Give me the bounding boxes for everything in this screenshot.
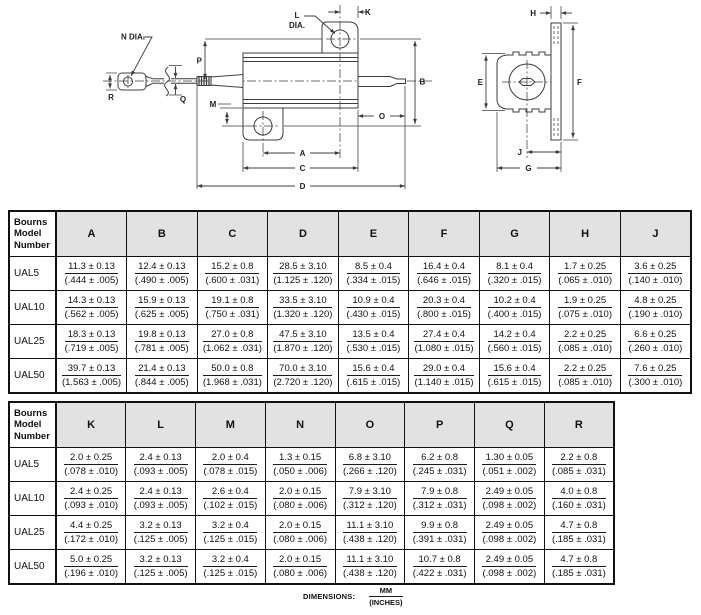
inch-value: (.085 ± .010)	[558, 376, 612, 388]
dim-cell: 28.5 ± 3.10(1.125 ± .120)	[268, 257, 339, 291]
inch-value: (.844 ± .005)	[135, 376, 189, 388]
mm-value: 2.49 ± 0.05	[482, 554, 536, 567]
model-cell: UAL10	[9, 482, 56, 516]
footer-dimensions-note: DIMENSIONS: MM (INCHES)	[303, 586, 403, 607]
inch-value: (.430 ± .015)	[347, 308, 401, 320]
mm-value: 10.7 ± 0.8	[413, 554, 467, 567]
mm-inch-fraction: 50.0 ± 0.8(1.968 ± .031)	[203, 363, 262, 388]
model-cell: UAL5	[9, 257, 56, 291]
mm-inch-fraction: 7.9 ± 0.8(.312 ± .031)	[413, 486, 467, 511]
mm-inch-fraction: 29.0 ± 0.4(1.140 ± .015)	[414, 363, 473, 388]
mm-value: 15.6 ± 0.4	[347, 363, 401, 376]
inch-value: (.085 ± .010)	[558, 342, 612, 354]
inch-value: (1.140 ± .015)	[414, 376, 473, 388]
inch-value: (.140 ± .010)	[628, 274, 682, 286]
inch-value: (.098 ± .002)	[482, 533, 536, 545]
table-row: UAL1014.3 ± 0.13(.562 ± .005)15.9 ± 0.13…	[9, 291, 691, 325]
inch-value: (.312 ± .120)	[343, 499, 397, 511]
inch-value: (1.080 ± .015)	[414, 342, 473, 354]
mm-inch-fraction: 1.9 ± 0.25(.075 ± .010)	[558, 295, 612, 320]
inch-value: (.051 ± .002)	[482, 465, 536, 477]
table-row: UAL2518.3 ± 0.13(.719 ± .005)19.8 ± 0.13…	[9, 325, 691, 359]
mm-inch-fraction: 2.0 ± 0.15(.080 ± .006)	[273, 520, 327, 545]
mm-inch-fraction: 8.1 ± 0.4(.320 ± .015)	[488, 261, 542, 286]
mm-value: 20.3 ± 0.4	[417, 295, 471, 308]
mm-inch-fraction: 27.4 ± 0.4(1.080 ± .015)	[414, 329, 473, 354]
dim-cell: 2.49 ± 0.05(.098 ± .002)	[475, 550, 545, 585]
inch-value: (.172 ± .010)	[64, 533, 118, 545]
units-inches: (INCHES)	[369, 597, 402, 607]
dim-label-h: H	[530, 9, 536, 18]
dim-cell: 19.1 ± 0.8(.750 ± .031)	[197, 291, 268, 325]
mm-inch-fraction: 6.6 ± 0.25(.260 ± .010)	[628, 329, 682, 354]
inch-value: (.334 ± .015)	[347, 274, 401, 286]
mm-value: 70.0 ± 3.10	[273, 363, 332, 376]
inch-value: (1.320 ± .120)	[273, 308, 332, 320]
mm-value: 2.4 ± 0.13	[134, 452, 188, 465]
inch-value: (.422 ± .031)	[413, 567, 467, 579]
table-row: UAL102.4 ± 0.25(.093 ± .010)2.4 ± 0.13(.…	[9, 482, 614, 516]
mm-inch-fraction: 39.7 ± 0.13(1.563 ± .005)	[62, 363, 121, 388]
table-row: UAL5039.7 ± 0.13(1.563 ± .005)21.4 ± 0.1…	[9, 359, 691, 394]
mm-value: 2.0 ± 0.25	[64, 452, 118, 465]
inch-value: (1.125 ± .120)	[273, 274, 332, 286]
dim-cell: 16.4 ± 0.4(.646 ± .015)	[409, 257, 480, 291]
inch-value: (.438 ± .120)	[343, 567, 397, 579]
dim-cell: 2.0 ± 0.15(.080 ± .006)	[265, 516, 335, 550]
mm-inch-fraction: 1.30 ± 0.05(.051 ± .002)	[482, 452, 536, 477]
inch-value: (.750 ± .031)	[205, 308, 259, 320]
table-row: UAL52.0 ± 0.25(.078 ± .010)2.4 ± 0.13(.0…	[9, 448, 614, 482]
dim-cell: 3.2 ± 0.13(.125 ± .005)	[126, 516, 196, 550]
dim-cell: 2.4 ± 0.13(.093 ± .005)	[126, 448, 196, 482]
mm-value: 29.0 ± 0.4	[414, 363, 473, 376]
mm-value: 15.6 ± 0.4	[488, 363, 542, 376]
dimension-table-2-container: Bourns Model NumberKLMNOPQRUAL52.0 ± 0.2…	[8, 401, 615, 585]
dim-cell: 3.6 ± 0.25(.140 ± .010)	[620, 257, 691, 291]
inch-value: (.085 ± .031)	[552, 465, 606, 477]
mm-value: 19.8 ± 0.13	[135, 329, 189, 342]
dim-cell: 2.0 ± 0.15(.080 ± .006)	[265, 550, 335, 585]
table-row: UAL505.0 ± 0.25(.196 ± .010)3.2 ± 0.13(.…	[9, 550, 614, 585]
inch-value: (.719 ± .005)	[65, 342, 119, 354]
model-number-header: Bourns Model Number	[9, 211, 56, 257]
model-cell: UAL50	[9, 359, 56, 394]
inch-value: (.300 ± .010)	[628, 376, 682, 388]
mm-value: 19.1 ± 0.8	[205, 295, 259, 308]
column-header: N	[265, 402, 335, 448]
dim-cell: 14.2 ± 0.4(.560 ± .015)	[479, 325, 550, 359]
dimensions-label: DIMENSIONS:	[303, 592, 355, 601]
mm-value: 15.9 ± 0.13	[135, 295, 189, 308]
dimension-lines-side	[486, 13, 573, 168]
dim-cell: 7.6 ± 0.25(.300 ± .010)	[620, 359, 691, 394]
dim-cell: 11.3 ± 0.13(.444 ± .005)	[56, 257, 127, 291]
mm-value: 6.6 ± 0.25	[628, 329, 682, 342]
mm-inch-fraction: 20.3 ± 0.4(.800 ± .015)	[417, 295, 471, 320]
inch-value: (.098 ± .002)	[482, 567, 536, 579]
dim-label-b: B	[420, 78, 426, 87]
mm-value: 2.0 ± 0.15	[273, 554, 327, 567]
mm-value: 1.9 ± 0.25	[558, 295, 612, 308]
inch-value: (.102 ± .015)	[203, 499, 257, 511]
dim-cell: 12.4 ± 0.13(.490 ± .005)	[127, 257, 198, 291]
units-mm: MM	[369, 586, 402, 597]
mm-value: 12.4 ± 0.13	[135, 261, 189, 274]
column-header: Q	[475, 402, 545, 448]
mm-inch-fraction: 2.0 ± 0.4(.078 ± .015)	[203, 452, 257, 477]
inch-value: (.560 ± .015)	[488, 342, 542, 354]
dim-cell: 13.5 ± 0.4(.530 ± .015)	[338, 325, 409, 359]
dim-cell: 6.8 ± 3.10(.266 ± .120)	[335, 448, 405, 482]
dim-label-o: O	[379, 112, 385, 121]
front-view: N DIA. L DIA. K P Q R M B O A C D	[103, 5, 432, 191]
mm-inch-fraction: 3.2 ± 0.4(.125 ± .015)	[203, 554, 257, 579]
mm-value: 33.5 ± 3.10	[273, 295, 332, 308]
inch-value: (.438 ± .120)	[343, 533, 397, 545]
inch-value: (.615 ± .015)	[347, 376, 401, 388]
mm-inch-fraction: 3.2 ± 0.13(.125 ± .005)	[134, 520, 188, 545]
mm-value: 2.2 ± 0.25	[558, 329, 612, 342]
dim-cell: 9.9 ± 0.8(.391 ± .031)	[405, 516, 475, 550]
dim-label-p: P	[197, 57, 203, 66]
mm-value: 1.30 ± 0.05	[482, 452, 536, 465]
n-dia-leader	[131, 37, 152, 76]
mm-inch-fraction: 4.7 ± 0.8(.185 ± .031)	[552, 554, 606, 579]
dim-cell: 2.6 ± 0.4(.102 ± .015)	[196, 482, 266, 516]
dim-cell: 11.1 ± 3.10(.438 ± .120)	[335, 550, 405, 585]
header-row: Bourns Model NumberABCDEFGHJ	[9, 211, 691, 257]
mm-value: 4.8 ± 0.25	[628, 295, 682, 308]
inch-value: (.125 ± .005)	[134, 533, 188, 545]
inch-value: (.400 ± .015)	[488, 308, 542, 320]
mm-value: 11.3 ± 0.13	[65, 261, 119, 274]
mm-value: 2.49 ± 0.05	[482, 486, 536, 499]
inch-value: (2.720 ± .120)	[273, 376, 332, 388]
column-header: K	[56, 402, 126, 448]
inch-value: (.075 ± .010)	[558, 308, 612, 320]
extension-lines-front	[106, 6, 421, 189]
inch-value: (.050 ± .006)	[273, 465, 327, 477]
mm-value: 1.7 ± 0.25	[558, 261, 612, 274]
dim-label-a: A	[300, 149, 306, 158]
mm-inch-fraction: 27.0 ± 0.8(1.062 ± .031)	[203, 329, 262, 354]
mm-inch-fraction: 4.7 ± 0.8(.185 ± .031)	[552, 520, 606, 545]
model-cell: UAL10	[9, 291, 56, 325]
dim-cell: 2.49 ± 0.05(.098 ± .002)	[475, 516, 545, 550]
mm-value: 4.7 ± 0.8	[552, 520, 606, 533]
inch-value: (.625 ± .005)	[135, 308, 189, 320]
inch-value: (.391 ± .031)	[413, 533, 467, 545]
column-header: D	[268, 211, 339, 257]
dim-cell: 4.7 ± 0.8(.185 ± .031)	[544, 550, 614, 585]
inch-value: (.190 ± .010)	[628, 308, 682, 320]
dim-cell: 1.30 ± 0.05(.051 ± .002)	[475, 448, 545, 482]
inch-value: (.260 ± .010)	[628, 342, 682, 354]
inch-value: (.078 ± .010)	[64, 465, 118, 477]
mm-inch-fraction: 2.0 ± 0.25(.078 ± .010)	[64, 452, 118, 477]
break-symbol	[165, 67, 170, 96]
mm-value: 2.49 ± 0.05	[482, 520, 536, 533]
dim-cell: 7.9 ± 3.10(.312 ± .120)	[335, 482, 405, 516]
dim-cell: 4.8 ± 0.25(.190 ± .010)	[620, 291, 691, 325]
mm-value: 14.2 ± 0.4	[488, 329, 542, 342]
mm-value: 28.5 ± 3.10	[273, 261, 332, 274]
dim-cell: 6.2 ± 0.8(.245 ± .031)	[405, 448, 475, 482]
inch-value: (.093 ± .005)	[134, 465, 188, 477]
mm-value: 7.9 ± 3.10	[343, 486, 397, 499]
dim-cell: 3.2 ± 0.13(.125 ± .005)	[126, 550, 196, 585]
inch-value: (.245 ± .031)	[413, 465, 467, 477]
dim-cell: 7.9 ± 0.8(.312 ± .031)	[405, 482, 475, 516]
mm-inch-fraction: 4.0 ± 0.8(.160 ± .031)	[552, 486, 606, 511]
dim-cell: 1.3 ± 0.15(.050 ± .006)	[265, 448, 335, 482]
column-header: M	[196, 402, 266, 448]
mm-value: 2.4 ± 0.25	[64, 486, 118, 499]
mm-value: 6.2 ± 0.8	[413, 452, 467, 465]
mm-value: 15.2 ± 0.8	[205, 261, 259, 274]
mm-value: 18.3 ± 0.13	[65, 329, 119, 342]
dim-cell: 1.7 ± 0.25(.065 ± .010)	[550, 257, 621, 291]
dim-cell: 27.0 ± 0.8(1.062 ± .031)	[197, 325, 268, 359]
mm-value: 16.4 ± 0.4	[417, 261, 471, 274]
mm-inch-fraction: 15.2 ± 0.8(.600 ± .031)	[205, 261, 259, 286]
mm-inch-fraction: 13.5 ± 0.4(.530 ± .015)	[347, 329, 401, 354]
mm-inch-fraction: 18.3 ± 0.13(.719 ± .005)	[65, 329, 119, 354]
mm-inch-fraction: 12.4 ± 0.13(.490 ± .005)	[135, 261, 189, 286]
model-cell: UAL25	[9, 516, 56, 550]
extension-lines-side	[482, 6, 578, 172]
mm-value: 10.2 ± 0.4	[488, 295, 542, 308]
mm-value: 3.2 ± 0.13	[134, 554, 188, 567]
mm-inch-fraction: 6.2 ± 0.8(.245 ± .031)	[413, 452, 467, 477]
mm-inch-fraction: 10.2 ± 0.4(.400 ± .015)	[488, 295, 542, 320]
mm-value: 27.4 ± 0.4	[414, 329, 473, 342]
dim-cell: 2.49 ± 0.05(.098 ± .002)	[475, 482, 545, 516]
inch-value: (.078 ± .015)	[203, 465, 257, 477]
dim-cell: 2.2 ± 0.25(.085 ± .010)	[550, 325, 621, 359]
mm-value: 2.6 ± 0.4	[203, 486, 257, 499]
mm-value: 7.6 ± 0.25	[628, 363, 682, 376]
mm-value: 5.0 ± 0.25	[64, 554, 118, 567]
datasheet-page: N DIA. L DIA. K P Q R M B O A C D	[0, 0, 701, 615]
mm-inch-fraction: 2.4 ± 0.25(.093 ± .010)	[64, 486, 118, 511]
dim-label-f: F	[577, 78, 582, 87]
mm-inch-fraction: 14.3 ± 0.13(.562 ± .005)	[65, 295, 119, 320]
dimension-table-1: Bourns Model NumberABCDEFGHJUAL511.3 ± 0…	[8, 210, 692, 394]
mm-value: 3.2 ± 0.4	[203, 554, 257, 567]
inch-value: (.080 ± .006)	[273, 567, 327, 579]
mm-value: 2.4 ± 0.13	[134, 486, 188, 499]
model-cell: UAL5	[9, 448, 56, 482]
mm-inch-fraction: 15.9 ± 0.13(.625 ± .005)	[135, 295, 189, 320]
inch-value: (.160 ± .031)	[552, 499, 606, 511]
column-header: A	[56, 211, 127, 257]
dim-cell: 29.0 ± 0.4(1.140 ± .015)	[409, 359, 480, 394]
mm-value: 39.7 ± 0.13	[62, 363, 121, 376]
side-view: H E F J G	[478, 6, 582, 173]
dim-cell: 70.0 ± 3.10(2.720 ± .120)	[268, 359, 339, 394]
dim-cell: 6.6 ± 0.25(.260 ± .010)	[620, 325, 691, 359]
mm-value: 2.0 ± 0.15	[273, 520, 327, 533]
mm-value: 2.2 ± 0.25	[558, 363, 612, 376]
dim-cell: 5.0 ± 0.25(.196 ± .010)	[56, 550, 126, 585]
column-header: O	[335, 402, 405, 448]
mm-value: 4.0 ± 0.8	[552, 486, 606, 499]
dim-cell: 2.2 ± 0.25(.085 ± .010)	[550, 359, 621, 394]
dim-cell: 21.4 ± 0.13(.844 ± .005)	[127, 359, 198, 394]
mm-inch-fraction: 10.9 ± 0.4(.430 ± .015)	[347, 295, 401, 320]
column-header: G	[479, 211, 550, 257]
inch-value: (.093 ± .010)	[64, 499, 118, 511]
mm-value: 14.3 ± 0.13	[65, 295, 119, 308]
dimension-table-1-container: Bourns Model NumberABCDEFGHJUAL511.3 ± 0…	[8, 210, 692, 394]
inch-value: (.266 ± .120)	[343, 465, 397, 477]
inch-value: (.312 ± .031)	[413, 499, 467, 511]
dim-cell: 2.4 ± 0.25(.093 ± .010)	[56, 482, 126, 516]
dim-cell: 10.9 ± 0.4(.430 ± .015)	[338, 291, 409, 325]
dim-label-r: R	[108, 93, 114, 102]
column-header: B	[127, 211, 198, 257]
mm-inch-fraction: 7.9 ± 3.10(.312 ± .120)	[343, 486, 397, 511]
mm-inch-fraction: 2.2 ± 0.25(.085 ± .010)	[558, 329, 612, 354]
mm-inch-fraction: 1.7 ± 0.25(.065 ± .010)	[558, 261, 612, 286]
mm-inch-fraction: 2.6 ± 0.4(.102 ± .015)	[203, 486, 257, 511]
inch-value: (.196 ± .010)	[64, 567, 118, 579]
mounting-flange	[551, 23, 561, 140]
dim-cell: 20.3 ± 0.4(.800 ± .015)	[409, 291, 480, 325]
mm-inch-fraction: 9.9 ± 0.8(.391 ± .031)	[413, 520, 467, 545]
mm-value: 13.5 ± 0.4	[347, 329, 401, 342]
mm-value: 50.0 ± 0.8	[203, 363, 262, 376]
inch-value: (.080 ± .006)	[273, 499, 327, 511]
dimension-table-2: Bourns Model NumberKLMNOPQRUAL52.0 ± 0.2…	[8, 401, 615, 585]
mm-inch-fraction: 28.5 ± 3.10(1.125 ± .120)	[273, 261, 332, 286]
inch-value: (1.563 ± .005)	[62, 376, 121, 388]
mm-inch-fraction: 3.2 ± 0.13(.125 ± .005)	[134, 554, 188, 579]
model-cell: UAL50	[9, 550, 56, 585]
inch-value: (.185 ± .031)	[552, 533, 606, 545]
dim-label-g: G	[525, 164, 531, 173]
mm-inch-fraction: 2.2 ± 0.8(.085 ± .031)	[552, 452, 606, 477]
dim-label-l: L	[295, 11, 300, 20]
mm-inch-fraction: 4.4 ± 0.25(.172 ± .010)	[64, 520, 118, 545]
dim-cell: 14.3 ± 0.13(.562 ± .005)	[56, 291, 127, 325]
dim-cell: 10.7 ± 0.8(.422 ± .031)	[405, 550, 475, 585]
mm-value: 27.0 ± 0.8	[203, 329, 262, 342]
inch-value: (1.968 ± .031)	[203, 376, 262, 388]
dim-cell: 15.6 ± 0.4(.615 ± .015)	[338, 359, 409, 394]
model-number-header: Bourns Model Number	[9, 402, 56, 448]
dim-cell: 4.4 ± 0.25(.172 ± .010)	[56, 516, 126, 550]
inch-value: (.065 ± .010)	[558, 274, 612, 286]
dim-cell: 11.1 ± 3.10(.438 ± .120)	[335, 516, 405, 550]
dim-cell: 33.5 ± 3.10(1.320 ± .120)	[268, 291, 339, 325]
dim-cell: 19.8 ± 0.13(.781 ± .005)	[127, 325, 198, 359]
column-header: E	[338, 211, 409, 257]
mm-inch-fraction: 15.6 ± 0.4(.615 ± .015)	[488, 363, 542, 388]
mm-inch-fraction: 2.2 ± 0.25(.085 ± .010)	[558, 363, 612, 388]
mm-inch-fraction: 2.0 ± 0.15(.080 ± .006)	[273, 486, 327, 511]
l-dia-leader	[304, 16, 335, 34]
dim-cell: 3.2 ± 0.4(.125 ± .015)	[196, 516, 266, 550]
dim-cell: 1.9 ± 0.25(.075 ± .010)	[550, 291, 621, 325]
mm-value: 8.1 ± 0.4	[488, 261, 542, 274]
inch-value: (1.870 ± .120)	[273, 342, 332, 354]
inch-value: (.125 ± .015)	[203, 567, 257, 579]
inch-value: (.490 ± .005)	[135, 274, 189, 286]
dim-cell: 3.2 ± 0.4(.125 ± .015)	[196, 550, 266, 585]
mm-inch-fraction: 10.7 ± 0.8(.422 ± .031)	[413, 554, 467, 579]
inch-value: (.125 ± .005)	[134, 567, 188, 579]
mm-inch-fraction: 11.1 ± 3.10(.438 ± .120)	[343, 554, 397, 579]
inch-value: (.600 ± .031)	[205, 274, 259, 286]
dim-cell: 2.0 ± 0.25(.078 ± .010)	[56, 448, 126, 482]
inch-value: (.320 ± .015)	[488, 274, 542, 286]
dim-label-q: Q	[180, 95, 186, 104]
mm-value: 2.0 ± 0.15	[273, 486, 327, 499]
dim-cell: 15.6 ± 0.4(.615 ± .015)	[479, 359, 550, 394]
left-lead-and-lug	[118, 67, 243, 96]
column-header: R	[544, 402, 614, 448]
inch-value: (.080 ± .006)	[273, 533, 327, 545]
inch-value: (.646 ± .015)	[417, 274, 471, 286]
mm-inch-fraction: 47.5 ± 3.10(1.870 ± .120)	[273, 329, 332, 354]
inch-value: (.562 ± .005)	[65, 308, 119, 320]
inch-value: (.093 ± .005)	[134, 499, 188, 511]
column-header: C	[197, 211, 268, 257]
mm-value: 8.5 ± 0.4	[347, 261, 401, 274]
mm-inch-fraction: 2.49 ± 0.05(.098 ± .002)	[482, 486, 536, 511]
dim-label-n-dia: N DIA.	[121, 33, 145, 42]
dim-label-j: J	[518, 148, 522, 157]
mm-inch-fraction: 1.3 ± 0.15(.050 ± .006)	[273, 452, 327, 477]
dim-cell: 2.2 ± 0.8(.085 ± .031)	[544, 448, 614, 482]
dim-cell: 47.5 ± 3.10(1.870 ± .120)	[268, 325, 339, 359]
column-header: H	[550, 211, 621, 257]
mm-inch-fraction: 4.8 ± 0.25(.190 ± .010)	[628, 295, 682, 320]
mm-inch-fraction: 11.1 ± 3.10(.438 ± .120)	[343, 520, 397, 545]
inch-value: (.185 ± .031)	[552, 567, 606, 579]
mm-value: 21.4 ± 0.13	[135, 363, 189, 376]
mm-value: 10.9 ± 0.4	[347, 295, 401, 308]
mm-value: 2.2 ± 0.8	[552, 452, 606, 465]
table-row: UAL511.3 ± 0.13(.444 ± .005)12.4 ± 0.13(…	[9, 257, 691, 291]
dim-cell: 18.3 ± 0.13(.719 ± .005)	[56, 325, 127, 359]
mm-inch-fraction: 3.2 ± 0.4(.125 ± .015)	[203, 520, 257, 545]
mm-inch-fraction: 19.1 ± 0.8(.750 ± .031)	[205, 295, 259, 320]
mm-inch-fraction: 21.4 ± 0.13(.844 ± .005)	[135, 363, 189, 388]
right-lead	[358, 77, 406, 87]
model-cell: UAL25	[9, 325, 56, 359]
units-fraction: MM (INCHES)	[369, 586, 402, 607]
mm-value: 6.8 ± 3.10	[343, 452, 397, 465]
dim-label-m: M	[210, 100, 217, 109]
mm-inch-fraction: 11.3 ± 0.13(.444 ± .005)	[65, 261, 119, 286]
header-row: Bourns Model NumberKLMNOPQR	[9, 402, 614, 448]
column-header: F	[409, 211, 480, 257]
column-header: J	[620, 211, 691, 257]
inch-value: (.781 ± .005)	[135, 342, 189, 354]
dim-cell: 15.2 ± 0.8(.600 ± .031)	[197, 257, 268, 291]
mm-value: 2.0 ± 0.4	[203, 452, 257, 465]
inch-value: (.530 ± .015)	[347, 342, 401, 354]
mm-inch-fraction: 2.4 ± 0.13(.093 ± .005)	[134, 452, 188, 477]
mm-value: 11.1 ± 3.10	[343, 554, 397, 567]
dim-cell: 8.1 ± 0.4(.320 ± .015)	[479, 257, 550, 291]
inch-value: (.098 ± .002)	[482, 499, 536, 511]
mm-inch-fraction: 70.0 ± 3.10(2.720 ± .120)	[273, 363, 332, 388]
